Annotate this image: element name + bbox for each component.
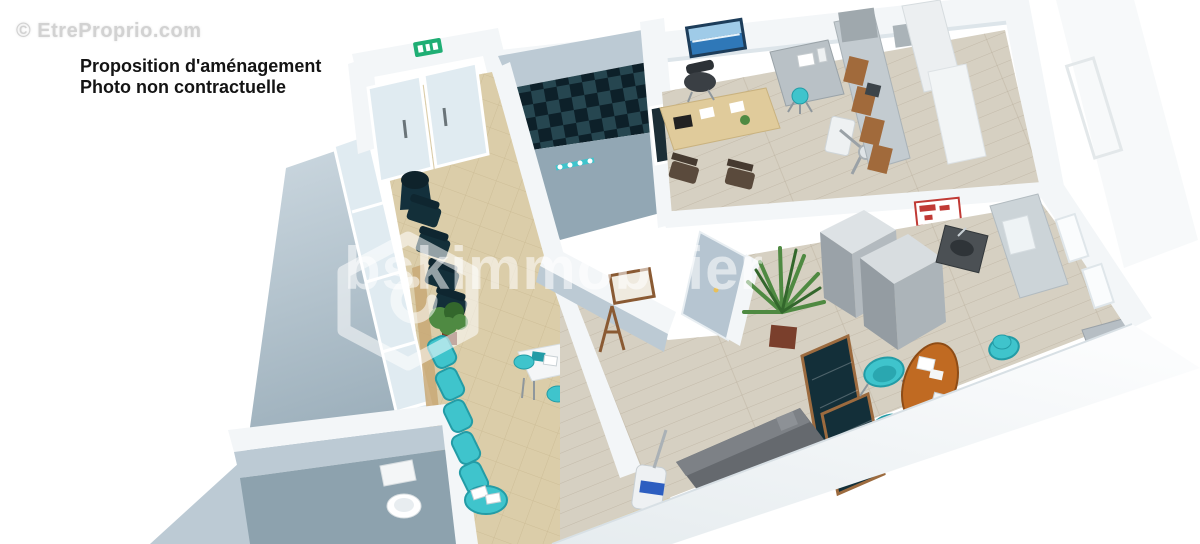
floorplan-render-image: © EtreProprio.com Proposition d'aménagem…: [0, 0, 1200, 544]
wc-room: [150, 402, 478, 544]
floorplan-3d-scene: [0, 0, 1200, 544]
teal-waste-bin: [993, 335, 1011, 349]
wall-picture-frame: [610, 269, 654, 304]
round-magazine-table: [465, 486, 507, 514]
